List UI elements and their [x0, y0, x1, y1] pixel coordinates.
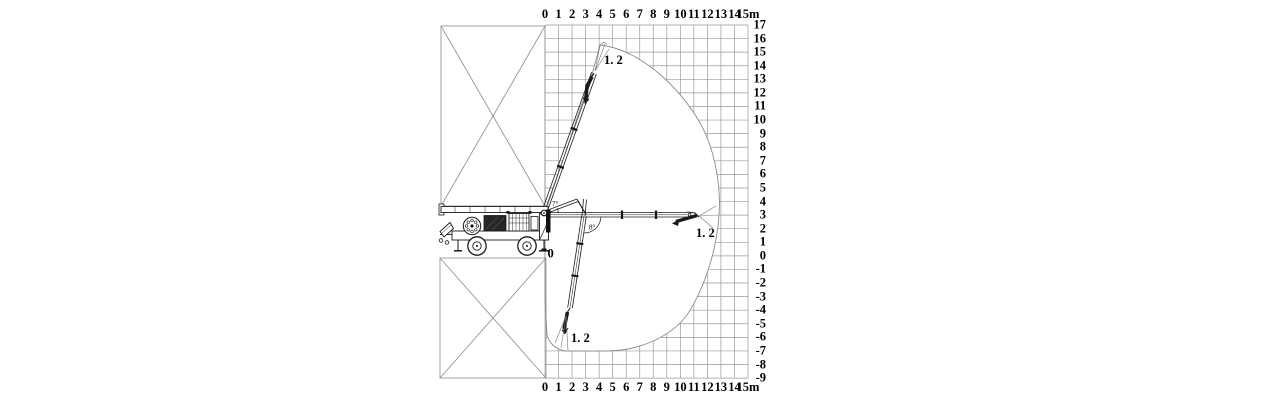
x-tick-label: 3 [582, 7, 588, 22]
x-tick-label: 7 [637, 380, 643, 395]
end-hose-label-right: 1. 2 [696, 226, 715, 240]
wheel-rear [518, 237, 536, 255]
engine-box [484, 216, 506, 232]
x-tick-label: 0 [542, 380, 548, 395]
x-tick-label: 6 [623, 380, 629, 395]
x-tick-label: 5 [610, 380, 616, 395]
x-tick-label: 8 [650, 380, 656, 395]
x-tick-label: 12 [701, 380, 714, 395]
clearance-box-bottom [440, 258, 546, 378]
x-tick-label: 1 [555, 7, 561, 22]
pump-truck [439, 204, 551, 255]
working-range-diagram: 1. 2 1. 2 1. 2 0 7° 8° 01234567891011121… [0, 0, 1280, 400]
x-tick-label: 0 [542, 7, 548, 22]
clearance-box-top [441, 26, 545, 206]
working-envelope-boundary [545, 45, 719, 351]
grille-box [509, 214, 529, 232]
x-tick-label: 11 [688, 7, 700, 22]
diagram-drawing: 1. 2 1. 2 1. 2 0 7° 8° [0, 0, 1280, 400]
x-tick-label: 12 [701, 7, 714, 22]
x-tick-label: 13 [715, 7, 728, 22]
x-tick-label: 2 [569, 7, 575, 22]
y-tick-label: -9 [756, 371, 766, 386]
x-tick-label: 8 [650, 7, 656, 22]
angle-label-a: 7° [552, 200, 559, 208]
x-tick-label: 9 [664, 7, 670, 22]
x-tick-label: 10 [674, 380, 687, 395]
end-hose-label-top: 1. 2 [604, 53, 623, 67]
x-tick-label: 6 [623, 7, 629, 22]
x-tick-label: 13 [715, 380, 728, 395]
wheel-front [468, 237, 486, 255]
x-tick-label: 9 [664, 380, 670, 395]
x-tick-label: 3 [582, 380, 588, 395]
x-tick-label: 7 [637, 7, 643, 22]
end-hose-label-bottom: 1. 2 [571, 331, 590, 345]
angle-label-b: 8° [589, 224, 596, 232]
x-tick-label: 5 [610, 7, 616, 22]
x-tick-label: 4 [596, 7, 602, 22]
x-tick-label: 4 [596, 380, 602, 395]
folded-boom-bar [441, 207, 548, 213]
x-tick-label: 10 [674, 7, 687, 22]
x-tick-label: 2 [569, 380, 575, 395]
x-tick-label: 1 [555, 380, 561, 395]
envelope-peak-notch [600, 42, 607, 45]
x-tick-label: 11 [688, 380, 700, 395]
origin-zero-label: 0 [548, 247, 554, 261]
